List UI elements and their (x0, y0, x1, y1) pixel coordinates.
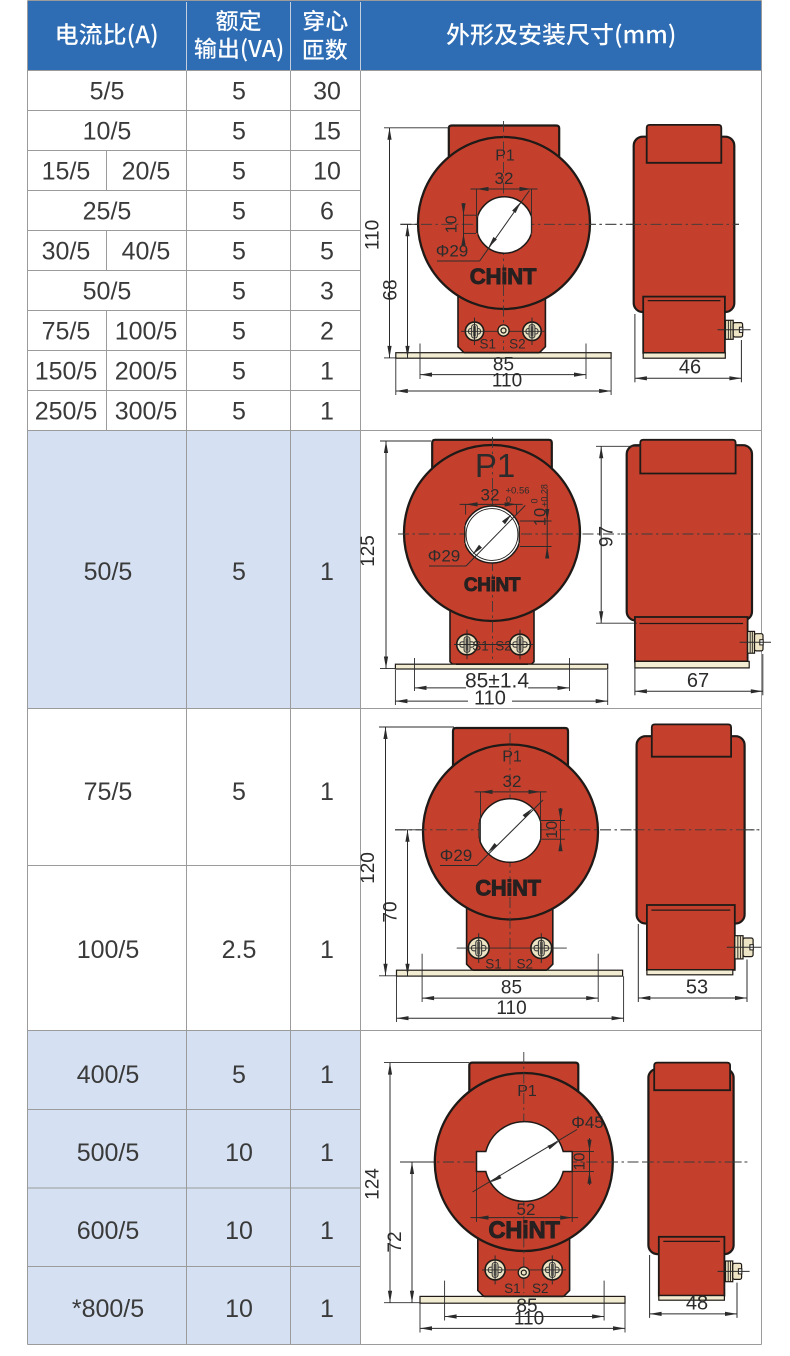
svg-text:Φ29: Φ29 (440, 846, 472, 865)
svg-text:70: 70 (381, 901, 402, 922)
svg-text:Φ29: Φ29 (436, 242, 468, 261)
svg-text:P1: P1 (475, 447, 515, 484)
svg-text:5: 5 (232, 278, 246, 306)
svg-text:5: 5 (232, 778, 246, 806)
svg-text:67: 67 (687, 670, 709, 692)
svg-text:P1: P1 (502, 749, 522, 766)
svg-text:1: 1 (320, 1295, 334, 1323)
svg-text:30/5: 30/5 (42, 238, 91, 266)
svg-text:5: 5 (232, 1061, 246, 1089)
svg-text:S1: S1 (472, 639, 489, 654)
svg-text:10/5: 10/5 (83, 118, 132, 146)
svg-text:75/5: 75/5 (42, 318, 91, 346)
svg-text:P1: P1 (495, 148, 515, 165)
svg-text:CHiNT: CHiNT (464, 575, 521, 596)
svg-text:120: 120 (358, 852, 379, 884)
svg-text:1: 1 (320, 1061, 334, 1089)
svg-text:500/5: 500/5 (77, 1139, 140, 1167)
svg-text:S2: S2 (532, 1281, 549, 1296)
svg-text:600/5: 600/5 (77, 1217, 140, 1245)
svg-text:Φ29: Φ29 (428, 547, 460, 566)
svg-text:46: 46 (679, 357, 701, 379)
svg-text:5: 5 (320, 238, 334, 266)
svg-text:CHiNT: CHiNT (470, 264, 537, 289)
svg-text:0: 0 (506, 495, 511, 506)
svg-text:CHiNT: CHiNT (488, 1217, 560, 1244)
svg-text:3: 3 (320, 278, 334, 306)
svg-text:S2: S2 (495, 639, 512, 654)
svg-text:S2: S2 (517, 956, 534, 971)
svg-text:0: 0 (530, 498, 540, 503)
svg-text:75/5: 75/5 (84, 778, 133, 806)
svg-text:50/5: 50/5 (84, 558, 133, 586)
svg-text:10: 10 (225, 1139, 253, 1167)
svg-text:10: 10 (532, 508, 550, 526)
svg-text:100/5: 100/5 (77, 936, 140, 964)
svg-text:S1: S1 (479, 337, 496, 352)
svg-text:100/5: 100/5 (115, 318, 178, 346)
svg-text:6: 6 (320, 198, 334, 226)
svg-text:1: 1 (320, 358, 334, 386)
svg-text:15: 15 (313, 118, 341, 146)
svg-text:10: 10 (544, 821, 561, 839)
svg-text:53: 53 (686, 977, 708, 999)
svg-text:150/5: 150/5 (35, 358, 98, 386)
svg-text:20/5: 20/5 (122, 158, 171, 186)
svg-text:+0.28: +0.28 (540, 484, 550, 507)
svg-text:110: 110 (496, 998, 526, 1019)
svg-text:85: 85 (501, 978, 522, 999)
svg-text:110: 110 (492, 371, 522, 392)
svg-text:48: 48 (686, 1293, 708, 1315)
svg-text:10: 10 (444, 215, 461, 233)
svg-text:68: 68 (381, 279, 402, 300)
svg-text:10: 10 (225, 1295, 253, 1323)
svg-text:32: 32 (503, 772, 522, 791)
svg-text:CHiNT: CHiNT (475, 875, 541, 900)
svg-text:5/5: 5/5 (90, 78, 125, 106)
svg-text:5: 5 (232, 318, 246, 346)
svg-text:5: 5 (232, 358, 246, 386)
svg-text:5: 5 (232, 238, 246, 266)
svg-text:300/5: 300/5 (115, 398, 178, 426)
svg-text:32: 32 (481, 486, 500, 505)
svg-text:5: 5 (232, 118, 246, 146)
svg-text:50/5: 50/5 (83, 278, 132, 306)
svg-text:1: 1 (320, 398, 334, 426)
svg-text:1: 1 (320, 1217, 334, 1245)
svg-text:1: 1 (320, 778, 334, 806)
svg-text:1: 1 (320, 936, 334, 964)
svg-text:250/5: 250/5 (35, 398, 98, 426)
svg-text:2.5: 2.5 (222, 936, 257, 964)
svg-text:S2: S2 (509, 337, 526, 352)
svg-text:*800/5: *800/5 (72, 1295, 144, 1323)
svg-text:30: 30 (313, 78, 341, 106)
svg-text:5: 5 (232, 78, 246, 106)
svg-text:5: 5 (232, 198, 246, 226)
svg-text:110: 110 (363, 220, 384, 250)
svg-text:5: 5 (232, 398, 246, 426)
svg-text:10: 10 (225, 1217, 253, 1245)
svg-text:S1: S1 (504, 1281, 521, 1296)
svg-text:110: 110 (514, 1309, 544, 1330)
svg-text:97: 97 (597, 526, 618, 547)
svg-text:1: 1 (320, 1139, 334, 1167)
svg-text:32: 32 (495, 169, 514, 188)
svg-text:200/5: 200/5 (115, 358, 178, 386)
svg-text:1: 1 (320, 558, 334, 586)
svg-text:P1: P1 (517, 1083, 537, 1100)
svg-text:2: 2 (320, 318, 334, 346)
svg-text:72: 72 (385, 1231, 406, 1252)
svg-text:52: 52 (517, 1200, 536, 1219)
svg-text:124: 124 (363, 1168, 384, 1200)
svg-text:40/5: 40/5 (122, 238, 171, 266)
svg-text:10: 10 (313, 158, 341, 186)
svg-text:110: 110 (474, 688, 506, 710)
svg-text:10: 10 (572, 1153, 589, 1171)
svg-text:400/5: 400/5 (77, 1061, 140, 1089)
svg-text:Φ45: Φ45 (571, 1113, 603, 1132)
svg-text:5: 5 (232, 558, 246, 586)
svg-text:S1: S1 (485, 956, 502, 971)
svg-text:125: 125 (358, 535, 379, 567)
svg-text:15/5: 15/5 (42, 158, 91, 186)
svg-text:25/5: 25/5 (83, 198, 132, 226)
svg-text:5: 5 (232, 158, 246, 186)
